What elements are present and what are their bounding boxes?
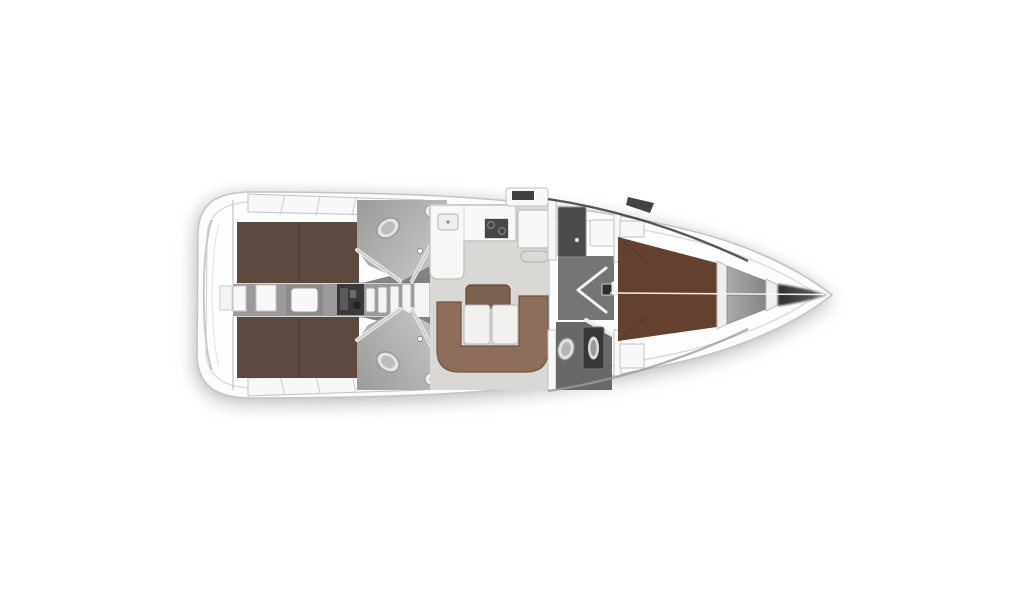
bow-bulkhead — [766, 279, 778, 311]
nav-station — [518, 210, 552, 262]
chart-table — [518, 210, 552, 248]
seat-cushion-left — [464, 305, 490, 344]
yacht-floor-plan — [0, 0, 1024, 600]
aft-cabin-starboard — [237, 317, 359, 378]
stern-locker-box — [233, 286, 246, 311]
yacht-floor-plan-canvas — [0, 0, 1024, 600]
salon — [430, 204, 552, 390]
locker-handle-icon — [575, 238, 579, 242]
wardrobe-locker — [558, 207, 586, 257]
transom-locker — [220, 286, 232, 310]
cabin-locker-bottom — [620, 344, 644, 368]
seat-cushion-right — [492, 305, 518, 344]
engine-cover — [291, 288, 318, 312]
stove-icon — [484, 218, 509, 239]
aft-berth-top — [237, 222, 359, 283]
nav-seat — [521, 251, 548, 262]
aft-cabin-port — [237, 222, 359, 283]
cabin-locker-top — [620, 221, 644, 237]
shower-stall — [583, 327, 604, 369]
galley-sink-icon — [438, 214, 458, 230]
hatch-slot — [512, 191, 534, 200]
aft-berth-bottom — [237, 317, 359, 378]
mainsheet-block-icon — [626, 197, 654, 213]
berth-headboard — [717, 261, 727, 329]
shower-mixer-icon — [418, 337, 423, 342]
engine-access-box — [256, 285, 276, 311]
shower-mixer-icon — [418, 249, 423, 254]
